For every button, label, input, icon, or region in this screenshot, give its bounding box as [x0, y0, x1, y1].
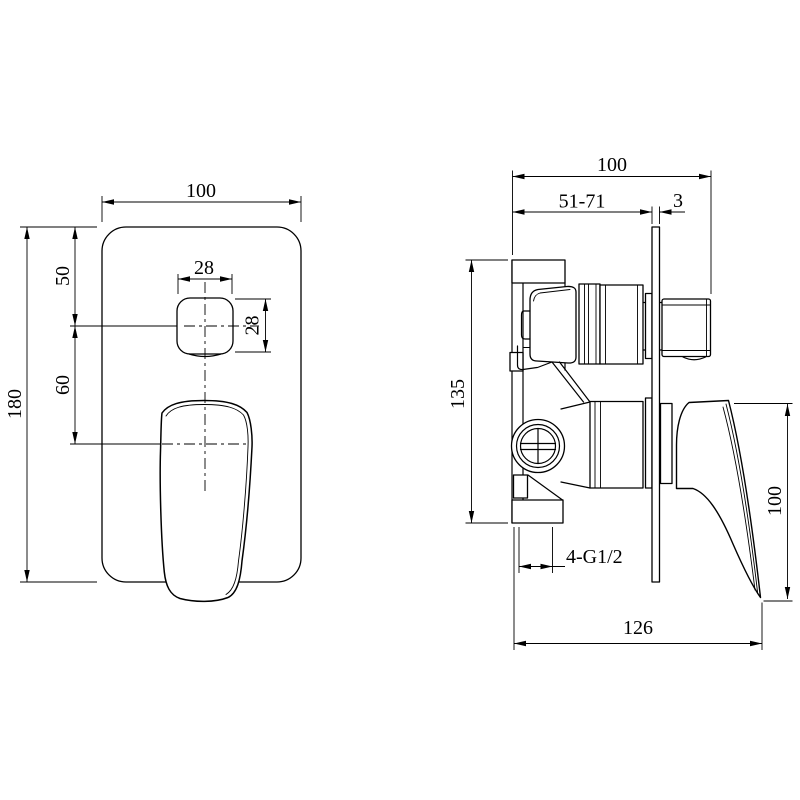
- side-handle-height-label: 100: [764, 486, 786, 516]
- front-width-label: 100: [186, 180, 216, 202]
- side-wall-plate: [646, 227, 660, 582]
- side-install-depth-dimension: 51-71 3: [513, 190, 686, 224]
- side-diverter-cartridge: [518, 284, 663, 370]
- side-button: [662, 299, 711, 360]
- technical-drawing: 100 180 50 60 28 28: [0, 0, 800, 800]
- front-handle: [160, 401, 252, 602]
- technical-drawing-page: 100 180 50 60 28 28: [0, 0, 800, 800]
- front-view: 100 180 50 60 28 28: [4, 180, 301, 601]
- front-handle-offset-label: 60: [52, 375, 74, 395]
- side-body-height-label: 135: [447, 379, 469, 409]
- side-depth-label: 100: [597, 154, 627, 176]
- side-body-height-dimension: 135: [447, 260, 508, 523]
- side-overall-width-dimension: 126: [514, 527, 762, 650]
- side-cartridge-circle: [512, 420, 565, 473]
- side-handle: [661, 401, 761, 598]
- front-button-height-label: 28: [242, 316, 264, 336]
- side-overall-width-label: 126: [623, 617, 653, 639]
- side-thread-label: 4-G1/2: [566, 546, 623, 568]
- front-height-dimension: 180: [4, 227, 97, 582]
- front-button-width-label: 28: [194, 257, 214, 279]
- side-mixer-cartridge: [590, 402, 643, 489]
- front-height-label: 180: [4, 389, 26, 419]
- front-width-dimension: 100: [102, 180, 301, 222]
- front-top-offset-label: 50: [52, 266, 74, 286]
- side-plate-thickness-label: 3: [673, 190, 683, 212]
- side-install-depth-label: 51-71: [559, 191, 606, 213]
- side-thread-dimension: 4-G1/2: [519, 527, 623, 573]
- side-view: 100 51-71 3 135 100: [447, 154, 793, 650]
